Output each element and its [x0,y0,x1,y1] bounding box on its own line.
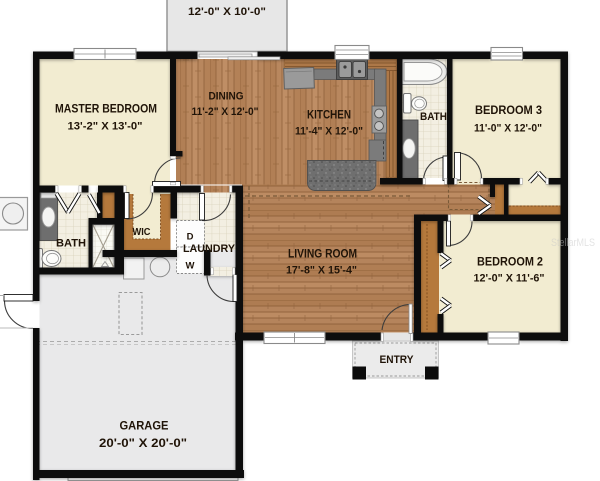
svg-text:BATH: BATH [56,238,86,250]
svg-text:StellarMLS: StellarMLS [551,237,595,249]
svg-text:20'-0" X 20'-0": 20'-0" X 20'-0" [99,438,187,450]
svg-text:LIVING ROOM: LIVING ROOM [288,249,357,261]
svg-text:GARAGE: GARAGE [120,421,169,433]
svg-text:WIC: WIC [133,227,151,238]
svg-text:12'-0" X 10'-0": 12'-0" X 10'-0" [188,6,266,18]
svg-text:11'-0" X 12'-0": 11'-0" X 12'-0" [474,123,542,135]
svg-text:BEDROOM 2: BEDROOM 2 [477,257,543,269]
svg-text:BEDROOM 3: BEDROOM 3 [475,105,542,117]
svg-text:11'-4" X 12'-0": 11'-4" X 12'-0" [295,126,363,138]
svg-text:17'-8" X 15'-4": 17'-8" X 15'-4" [286,265,357,277]
svg-text:W: W [186,261,195,272]
svg-text:DINING: DINING [209,91,244,103]
svg-text:13'-2" X 13'-0": 13'-2" X 13'-0" [68,121,143,133]
svg-text:MASTER BEDROOM: MASTER BEDROOM [55,102,157,116]
svg-text:11'-2" X 12'-0": 11'-2" X 12'-0" [192,106,259,118]
svg-text:ENTRY: ENTRY [380,354,415,366]
svg-text:12'-0" X 11'-6": 12'-0" X 11'-6" [474,273,545,285]
svg-text:KITCHEN: KITCHEN [307,110,351,122]
svg-text:D: D [187,232,194,243]
svg-text:LAUNDRY: LAUNDRY [183,243,236,255]
svg-text:BATH: BATH [420,111,447,123]
